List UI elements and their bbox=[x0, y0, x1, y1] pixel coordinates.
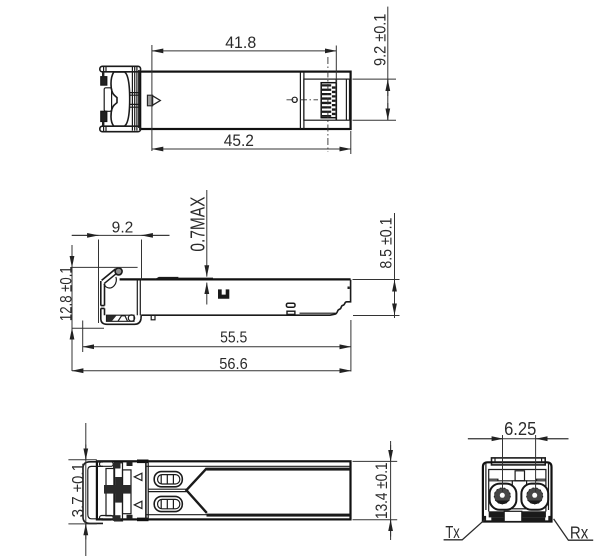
svg-text:Rx: Rx bbox=[570, 523, 589, 543]
svg-text:6.25: 6.25 bbox=[504, 418, 536, 439]
svg-text:13.4 ±0.1: 13.4 ±0.1 bbox=[372, 462, 391, 519]
svg-text:55.5: 55.5 bbox=[220, 329, 247, 346]
svg-text:8.5 ±0.1: 8.5 ±0.1 bbox=[376, 218, 395, 269]
svg-text:9.2: 9.2 bbox=[112, 220, 134, 237]
svg-text:41.8: 41.8 bbox=[225, 33, 256, 52]
svg-text:56.6: 56.6 bbox=[219, 356, 247, 373]
svg-text:0.7MAX: 0.7MAX bbox=[188, 197, 210, 252]
svg-text:45.2: 45.2 bbox=[224, 131, 254, 150]
svg-text:Tx: Tx bbox=[445, 522, 460, 542]
svg-text:3.7 ±0.1: 3.7 ±0.1 bbox=[68, 463, 87, 517]
svg-text:12.8 ±0.1: 12.8 ±0.1 bbox=[57, 266, 76, 321]
svg-text:9.2 ±0.1: 9.2 ±0.1 bbox=[370, 14, 389, 66]
